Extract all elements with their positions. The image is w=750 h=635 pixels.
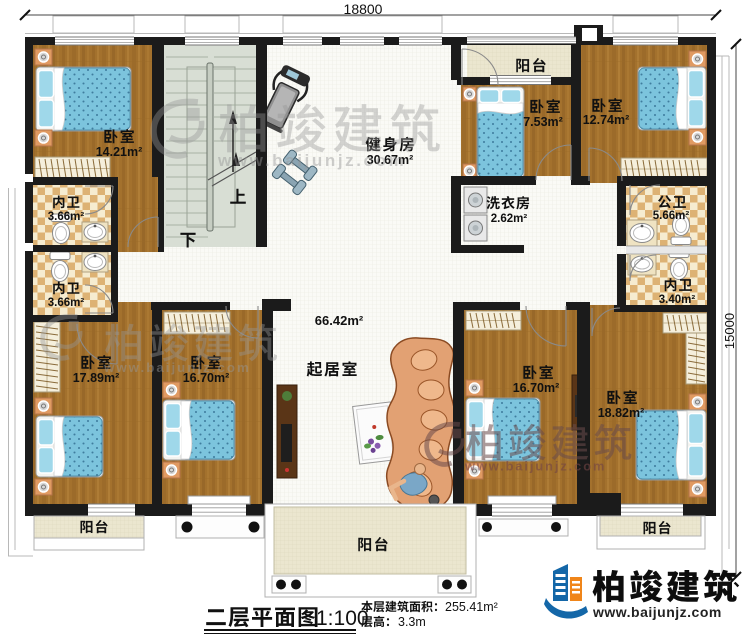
svg-text:3.66m²: 3.66m² — [48, 211, 85, 223]
svg-text:18.82m²: 18.82m² — [598, 406, 645, 420]
svg-text:18800: 18800 — [344, 1, 383, 17]
svg-text:1:100: 1:100 — [316, 607, 369, 630]
svg-text:12.74m²: 12.74m² — [583, 113, 630, 127]
svg-text:3.66m²: 3.66m² — [48, 297, 85, 309]
svg-text:www.baijunjz.com: www.baijunjz.com — [592, 604, 722, 620]
svg-text:66.42m²: 66.42m² — [315, 313, 364, 328]
svg-text:3.40m²: 3.40m² — [659, 294, 696, 306]
svg-text:14.21m²: 14.21m² — [96, 145, 143, 159]
svg-text:7.53m²: 7.53m² — [523, 115, 563, 129]
svg-text:15000: 15000 — [722, 313, 737, 349]
svg-text:5.66m²: 5.66m² — [653, 210, 690, 222]
svg-text:255.41m²: 255.41m² — [445, 600, 498, 614]
svg-text:2.62m²: 2.62m² — [491, 213, 528, 225]
svg-text:www.baijunjz.com: www.baijunjz.com — [103, 360, 251, 375]
svg-text:16.70m²: 16.70m² — [513, 381, 560, 395]
svg-text:www.baijunjz.com: www.baijunjz.com — [464, 459, 606, 474]
svg-text:www.baijunjz.com: www.baijunjz.com — [217, 151, 406, 170]
svg-text:3.3m: 3.3m — [398, 615, 426, 629]
